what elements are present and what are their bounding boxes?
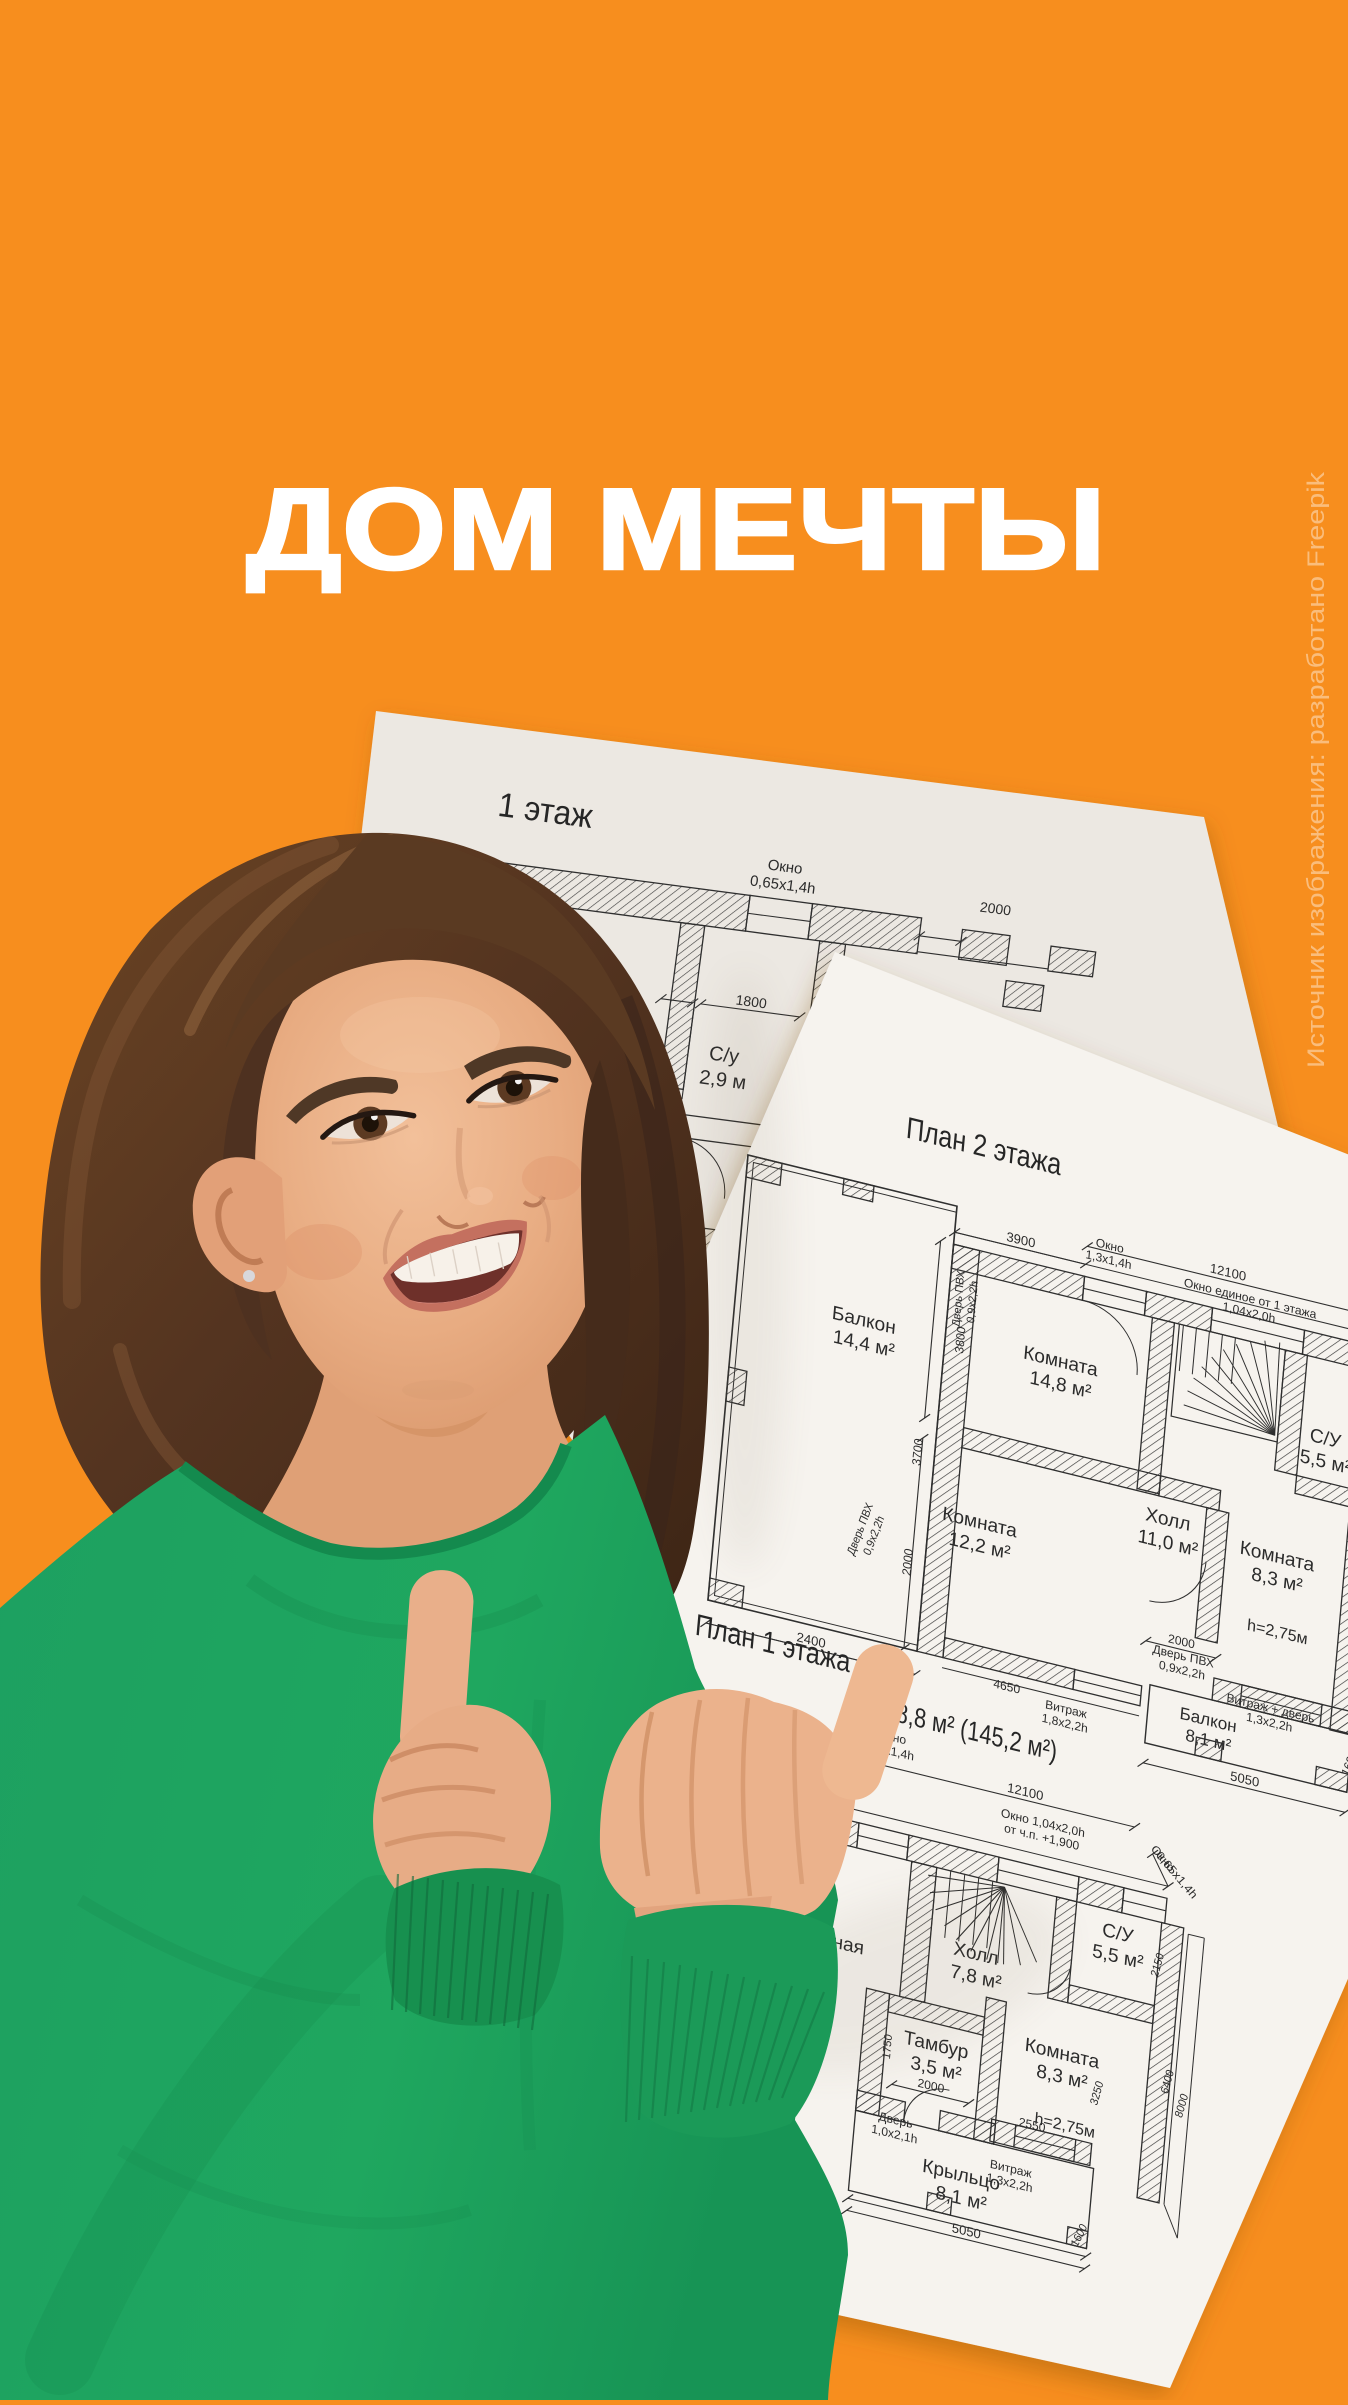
svg-text:2000: 2000 (900, 1547, 916, 1577)
svg-text:3800: 3800 (952, 1325, 968, 1355)
svg-text:ДОМ МЕЧТЫ: ДОМ МЕЧТЫ (246, 464, 1106, 594)
svg-text:Источник изображения: разработ: Источник изображения: разработано Freepi… (1303, 471, 1330, 1068)
